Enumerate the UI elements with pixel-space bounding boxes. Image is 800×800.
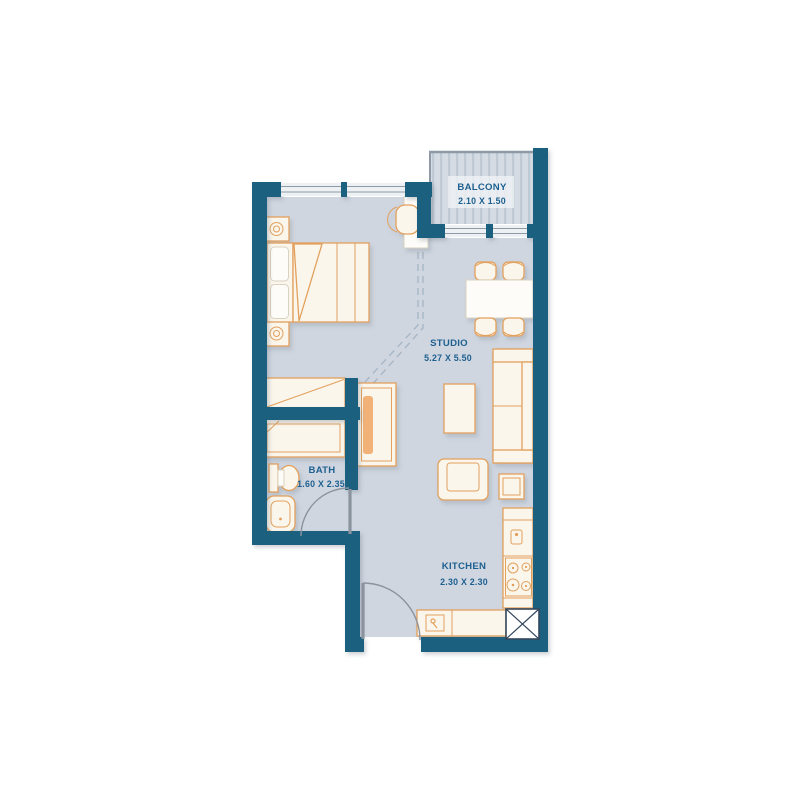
dining-table — [466, 280, 533, 318]
closet — [263, 378, 345, 409]
wall-bath-right — [345, 378, 358, 490]
dining-chair — [503, 262, 524, 280]
wall-right — [533, 148, 548, 652]
wall-bath-bottom — [252, 531, 360, 545]
studio-dimensions: 5.27 X 5.50 — [424, 353, 472, 363]
dining-chair — [475, 262, 496, 280]
pillow — [271, 247, 289, 281]
wall-balcony-stub — [417, 182, 431, 238]
sofa-armrest — [493, 450, 533, 463]
kitchen-counter-bottom — [417, 610, 506, 636]
wall-balcony-block — [527, 224, 533, 238]
wall-balcony-block — [431, 224, 445, 238]
window — [281, 183, 341, 196]
pillow — [271, 285, 289, 319]
balcony-window — [493, 225, 527, 237]
window — [347, 183, 405, 196]
wall-lower-left — [345, 545, 360, 652]
desk-chair — [396, 205, 419, 234]
basin-drain — [279, 518, 282, 521]
floor-plan-page: BALCONY 2.10 X 1.50 STUDIO 5.27 X 5.50 B… — [0, 0, 800, 800]
toilet — [269, 464, 299, 492]
wall-balcony-mullion — [486, 224, 493, 238]
kitchen-label: KITCHEN — [442, 561, 486, 572]
floor-plan-svg: BALCONY 2.10 X 1.50 STUDIO 5.27 X 5.50 B… — [0, 0, 800, 800]
dining-chair — [475, 318, 496, 336]
washbasin — [266, 496, 295, 532]
bathtub — [262, 419, 345, 457]
bath-dimensions: 1.60 X 2.35 — [297, 479, 345, 489]
coffee-table — [444, 384, 475, 433]
kitchen-counter-right — [503, 508, 533, 608]
sofa-armrest — [493, 349, 533, 362]
dining-chair — [503, 318, 524, 336]
double-bed — [267, 243, 369, 322]
sofa-back — [522, 362, 533, 450]
toilet-seat-join — [278, 470, 284, 486]
service-shaft — [506, 609, 539, 639]
studio-label: STUDIO — [430, 338, 468, 349]
side-table — [499, 474, 524, 499]
balcony-window — [445, 225, 486, 237]
bath-label: BATH — [309, 465, 336, 476]
balcony-label: BALCONY — [457, 182, 507, 193]
nightstand-top — [264, 217, 289, 241]
sofa — [493, 349, 533, 463]
wall-bottom-left-segment — [345, 637, 364, 652]
window-mullion — [341, 182, 347, 197]
armchair — [438, 459, 488, 500]
nightstand-bottom — [264, 321, 289, 346]
balcony-dimensions: 2.10 X 1.50 — [458, 196, 506, 206]
wall-left — [252, 182, 267, 545]
wardrobe — [357, 383, 396, 466]
toilet-tank — [269, 464, 278, 492]
wardrobe-hanging-bar — [363, 396, 373, 454]
kitchen-dimensions: 2.30 X 2.30 — [440, 577, 488, 587]
